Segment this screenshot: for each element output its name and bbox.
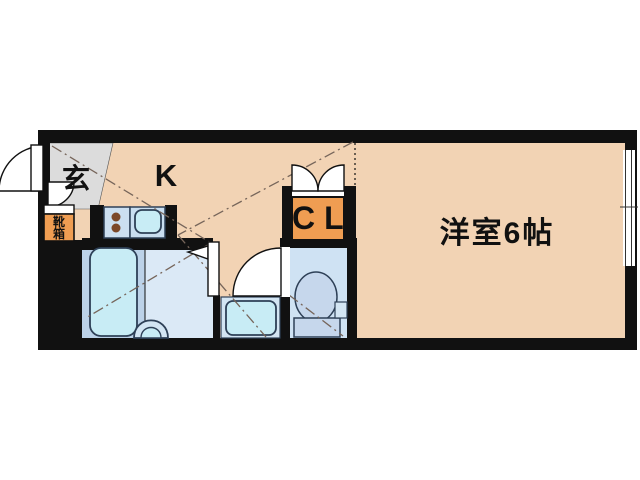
- kitchen-label: K: [155, 158, 178, 193]
- shoe-box-label: 箱: [53, 226, 65, 241]
- wall-toilet-right: [347, 238, 357, 338]
- floor-plan-canvas: 玄 K CL 洋室6帖 靴 箱: [0, 0, 640, 480]
- wall-toilet-left: [280, 296, 290, 338]
- wall-counter-right: [165, 205, 177, 245]
- toilet-tank-icon: [294, 318, 340, 337]
- closet-label: CL: [292, 200, 353, 236]
- kitchen-sink-icon: [135, 210, 161, 233]
- washing-machine-icon: [226, 301, 276, 335]
- toilet-flush-icon: [335, 302, 347, 318]
- stove-burner-icon: [112, 213, 121, 222]
- entry-door-leaf-icon: [31, 145, 43, 191]
- wall-bottom: [38, 338, 637, 350]
- shoe-box-top: [44, 205, 74, 214]
- stove-icon: [104, 207, 130, 238]
- wall-top: [38, 130, 637, 143]
- bathroom-door-leaf-icon: [208, 242, 219, 296]
- stove-burner-icon: [112, 224, 121, 233]
- floor-plan-page: 玄 K CL 洋室6帖 靴 箱: [0, 0, 640, 480]
- wall-closet-left: [282, 186, 292, 248]
- entrance-label: 玄: [62, 162, 90, 194]
- western-room-label: 洋室6帖: [440, 216, 555, 250]
- window-glass: [623, 150, 635, 266]
- wall-block-lower-left: [50, 240, 82, 338]
- toilet-bowl-icon: [295, 272, 337, 322]
- wall-counter-left: [90, 205, 104, 238]
